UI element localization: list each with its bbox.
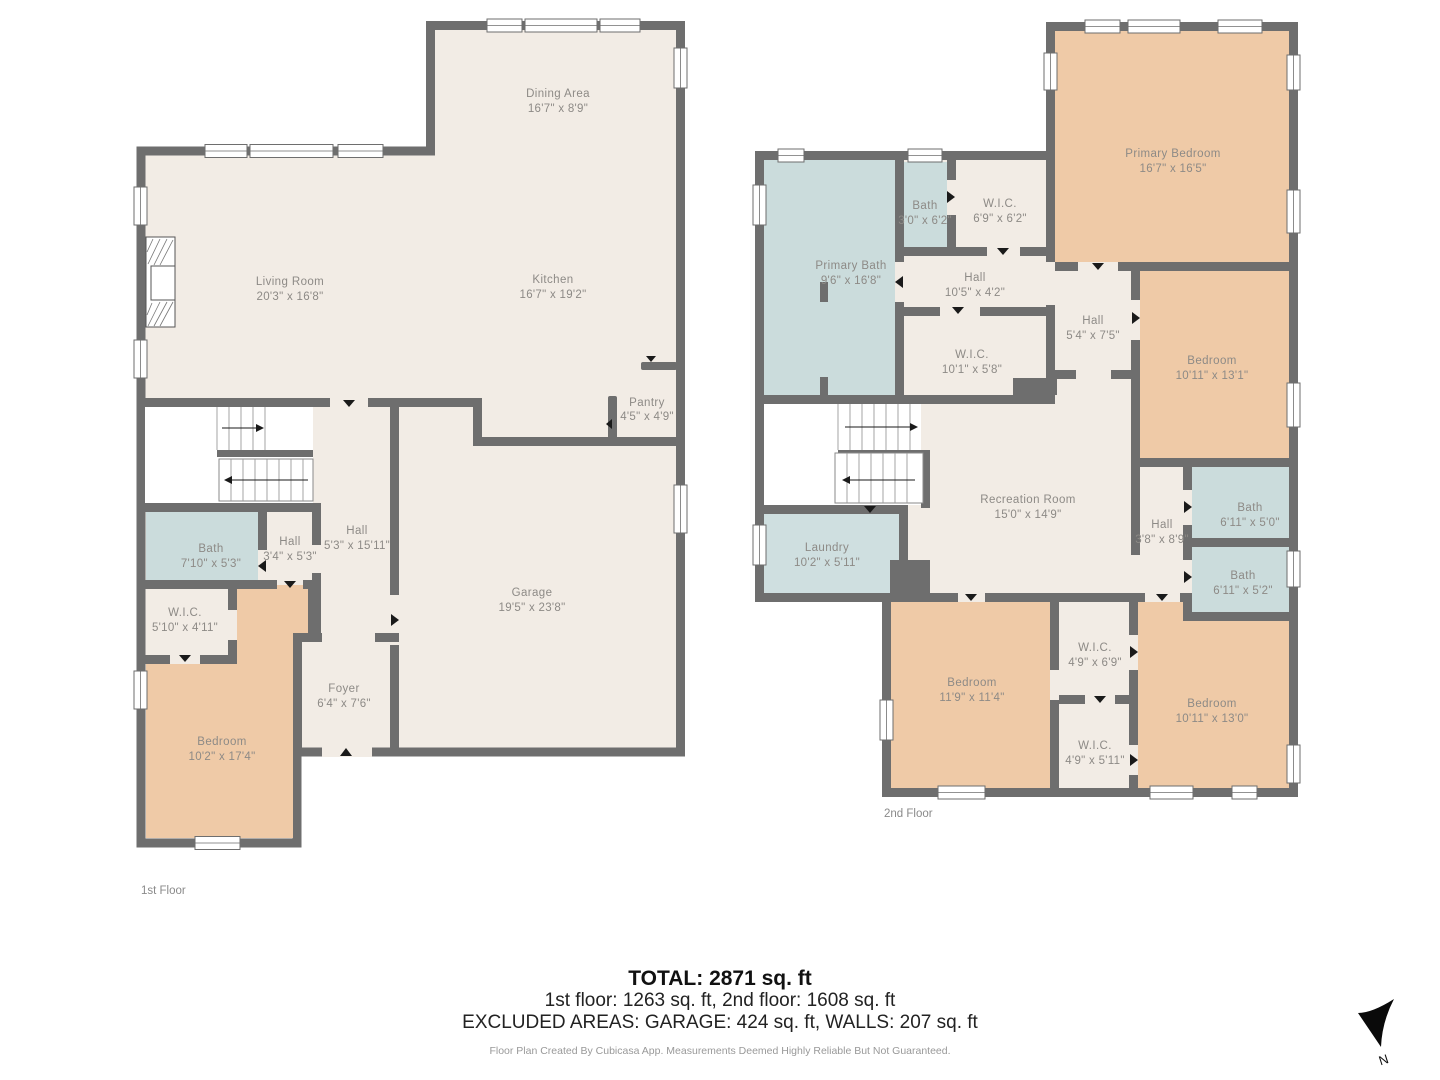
room-label: Hall	[1082, 315, 1103, 327]
room-label: Primary Bedroom	[1125, 148, 1220, 160]
room-dims: 10'2" x 5'11"	[794, 557, 860, 569]
room-label: Bath	[912, 200, 937, 212]
room-label: Hall	[346, 525, 367, 537]
room-label: W.I.C.	[168, 607, 202, 619]
floor2-plan: Primary Bedroom 16'7" x 16'5" Bath 3'0" …	[753, 20, 1300, 820]
room-dims: 11'9" x 11'4"	[939, 692, 1004, 704]
room-dims: 3'4" x 5'3"	[263, 551, 317, 563]
room-dims: 15'0" x 14'9"	[995, 509, 1062, 521]
room-dims: 4'9" x 6'9"	[1068, 657, 1122, 669]
room-label: Kitchen	[532, 274, 573, 286]
room-label: Bath	[1230, 570, 1255, 582]
room-dims: 19'5" x 23'8"	[499, 602, 566, 614]
room-label: W.I.C.	[983, 198, 1017, 210]
room-dims: 20'3" x 16'8"	[257, 291, 324, 303]
room-label: Pantry	[629, 397, 665, 409]
room-bedroom-se-fill	[1138, 602, 1289, 788]
room-label: Recreation Room	[980, 494, 1075, 506]
room-label: Primary Bath	[815, 260, 886, 272]
room-dims: 10'1" x 5'8"	[942, 364, 1002, 376]
floorplan-canvas: Dining Area 16'7" x 8'9" Living Room 20'…	[0, 0, 1440, 1080]
room-label: Bedroom	[197, 736, 246, 748]
room-label: Garage	[512, 587, 553, 599]
floor1-caption: 1st Floor	[141, 885, 186, 897]
room-label: Hall	[1151, 519, 1172, 531]
room-dims: 7'10" x 5'3"	[181, 558, 241, 570]
room-dims: 16'7" x 8'9"	[528, 103, 588, 115]
room-label: Foyer	[328, 683, 359, 695]
room-dims: 6'11" x 5'2"	[1213, 585, 1272, 597]
room-label: Bath	[198, 543, 223, 555]
room-label: Hall	[964, 272, 985, 284]
compass-north-arrow-icon	[1358, 999, 1394, 1047]
summary-block: TOTAL: 2871 sq. ft 1st floor: 1263 sq. f…	[462, 967, 978, 1057]
room-label: Hall	[279, 536, 300, 548]
summary-excluded: EXCLUDED AREAS: GARAGE: 424 sq. ft, WALL…	[462, 1012, 978, 1033]
compass-north-label: N	[1377, 1051, 1391, 1068]
room-dims: 10'2" x 17'4"	[189, 751, 256, 763]
stairs-first-floor	[145, 407, 313, 503]
summary-disclaimer: Floor Plan Created By Cubicasa App. Meas…	[489, 1045, 950, 1057]
room-label: Living Room	[256, 276, 324, 288]
floor-plan-page: Dining Area 16'7" x 8'9" Living Room 20'…	[0, 0, 1440, 1080]
room-label: Bedroom	[947, 677, 996, 689]
room-label: W.I.C.	[1078, 642, 1112, 654]
fireplace-icon	[146, 237, 175, 327]
room-dims: 3'8" x 8'9"	[1135, 534, 1189, 546]
room-dims: 6'9" x 6'2"	[973, 213, 1027, 225]
summary-floors: 1st floor: 1263 sq. ft, 2nd floor: 1608 …	[545, 990, 896, 1011]
room-dims: 5'4" x 7'5"	[1066, 330, 1120, 342]
room-primary-bedroom-fill	[1055, 31, 1289, 262]
floor1-plan: Dining Area 16'7" x 8'9" Living Room 20'…	[134, 19, 687, 897]
room-label: Bedroom	[1187, 355, 1236, 367]
room-dims: 10'11" x 13'0"	[1176, 713, 1249, 725]
room-dims: 6'11" x 5'0"	[1220, 517, 1279, 529]
room-dims: 16'7" x 16'5"	[1140, 163, 1207, 175]
room-label: Bedroom	[1187, 698, 1236, 710]
room-label: Dining Area	[526, 88, 590, 100]
room-dims: 5'3" x 15'11"	[324, 540, 390, 552]
room-dims: 16'7" x 19'2"	[520, 289, 587, 301]
room-dims: 6'4" x 7'6"	[317, 698, 371, 710]
room-label: Laundry	[805, 542, 849, 554]
room-label: W.I.C.	[955, 349, 989, 361]
room-dims: 9'6" x 16'8"	[821, 275, 881, 287]
room-dims: 5'10" x 4'11"	[152, 622, 218, 634]
room-label: W.I.C.	[1078, 740, 1112, 752]
room-dims: 3'0" x 6'2"	[898, 215, 952, 227]
room-dims: 4'5" x 4'9"	[620, 411, 674, 423]
room-dims: 10'5" x 4'2"	[945, 287, 1005, 299]
compass: N	[1358, 999, 1394, 1068]
floor2-caption: 2nd Floor	[884, 808, 933, 820]
room-dims: 4'9" x 5'11"	[1065, 755, 1124, 767]
summary-total: TOTAL: 2871 sq. ft	[628, 967, 812, 990]
stairs-second-floor	[764, 404, 923, 505]
room-dims: 10'11" x 13'1"	[1176, 370, 1249, 382]
room-label: Bath	[1237, 502, 1262, 514]
